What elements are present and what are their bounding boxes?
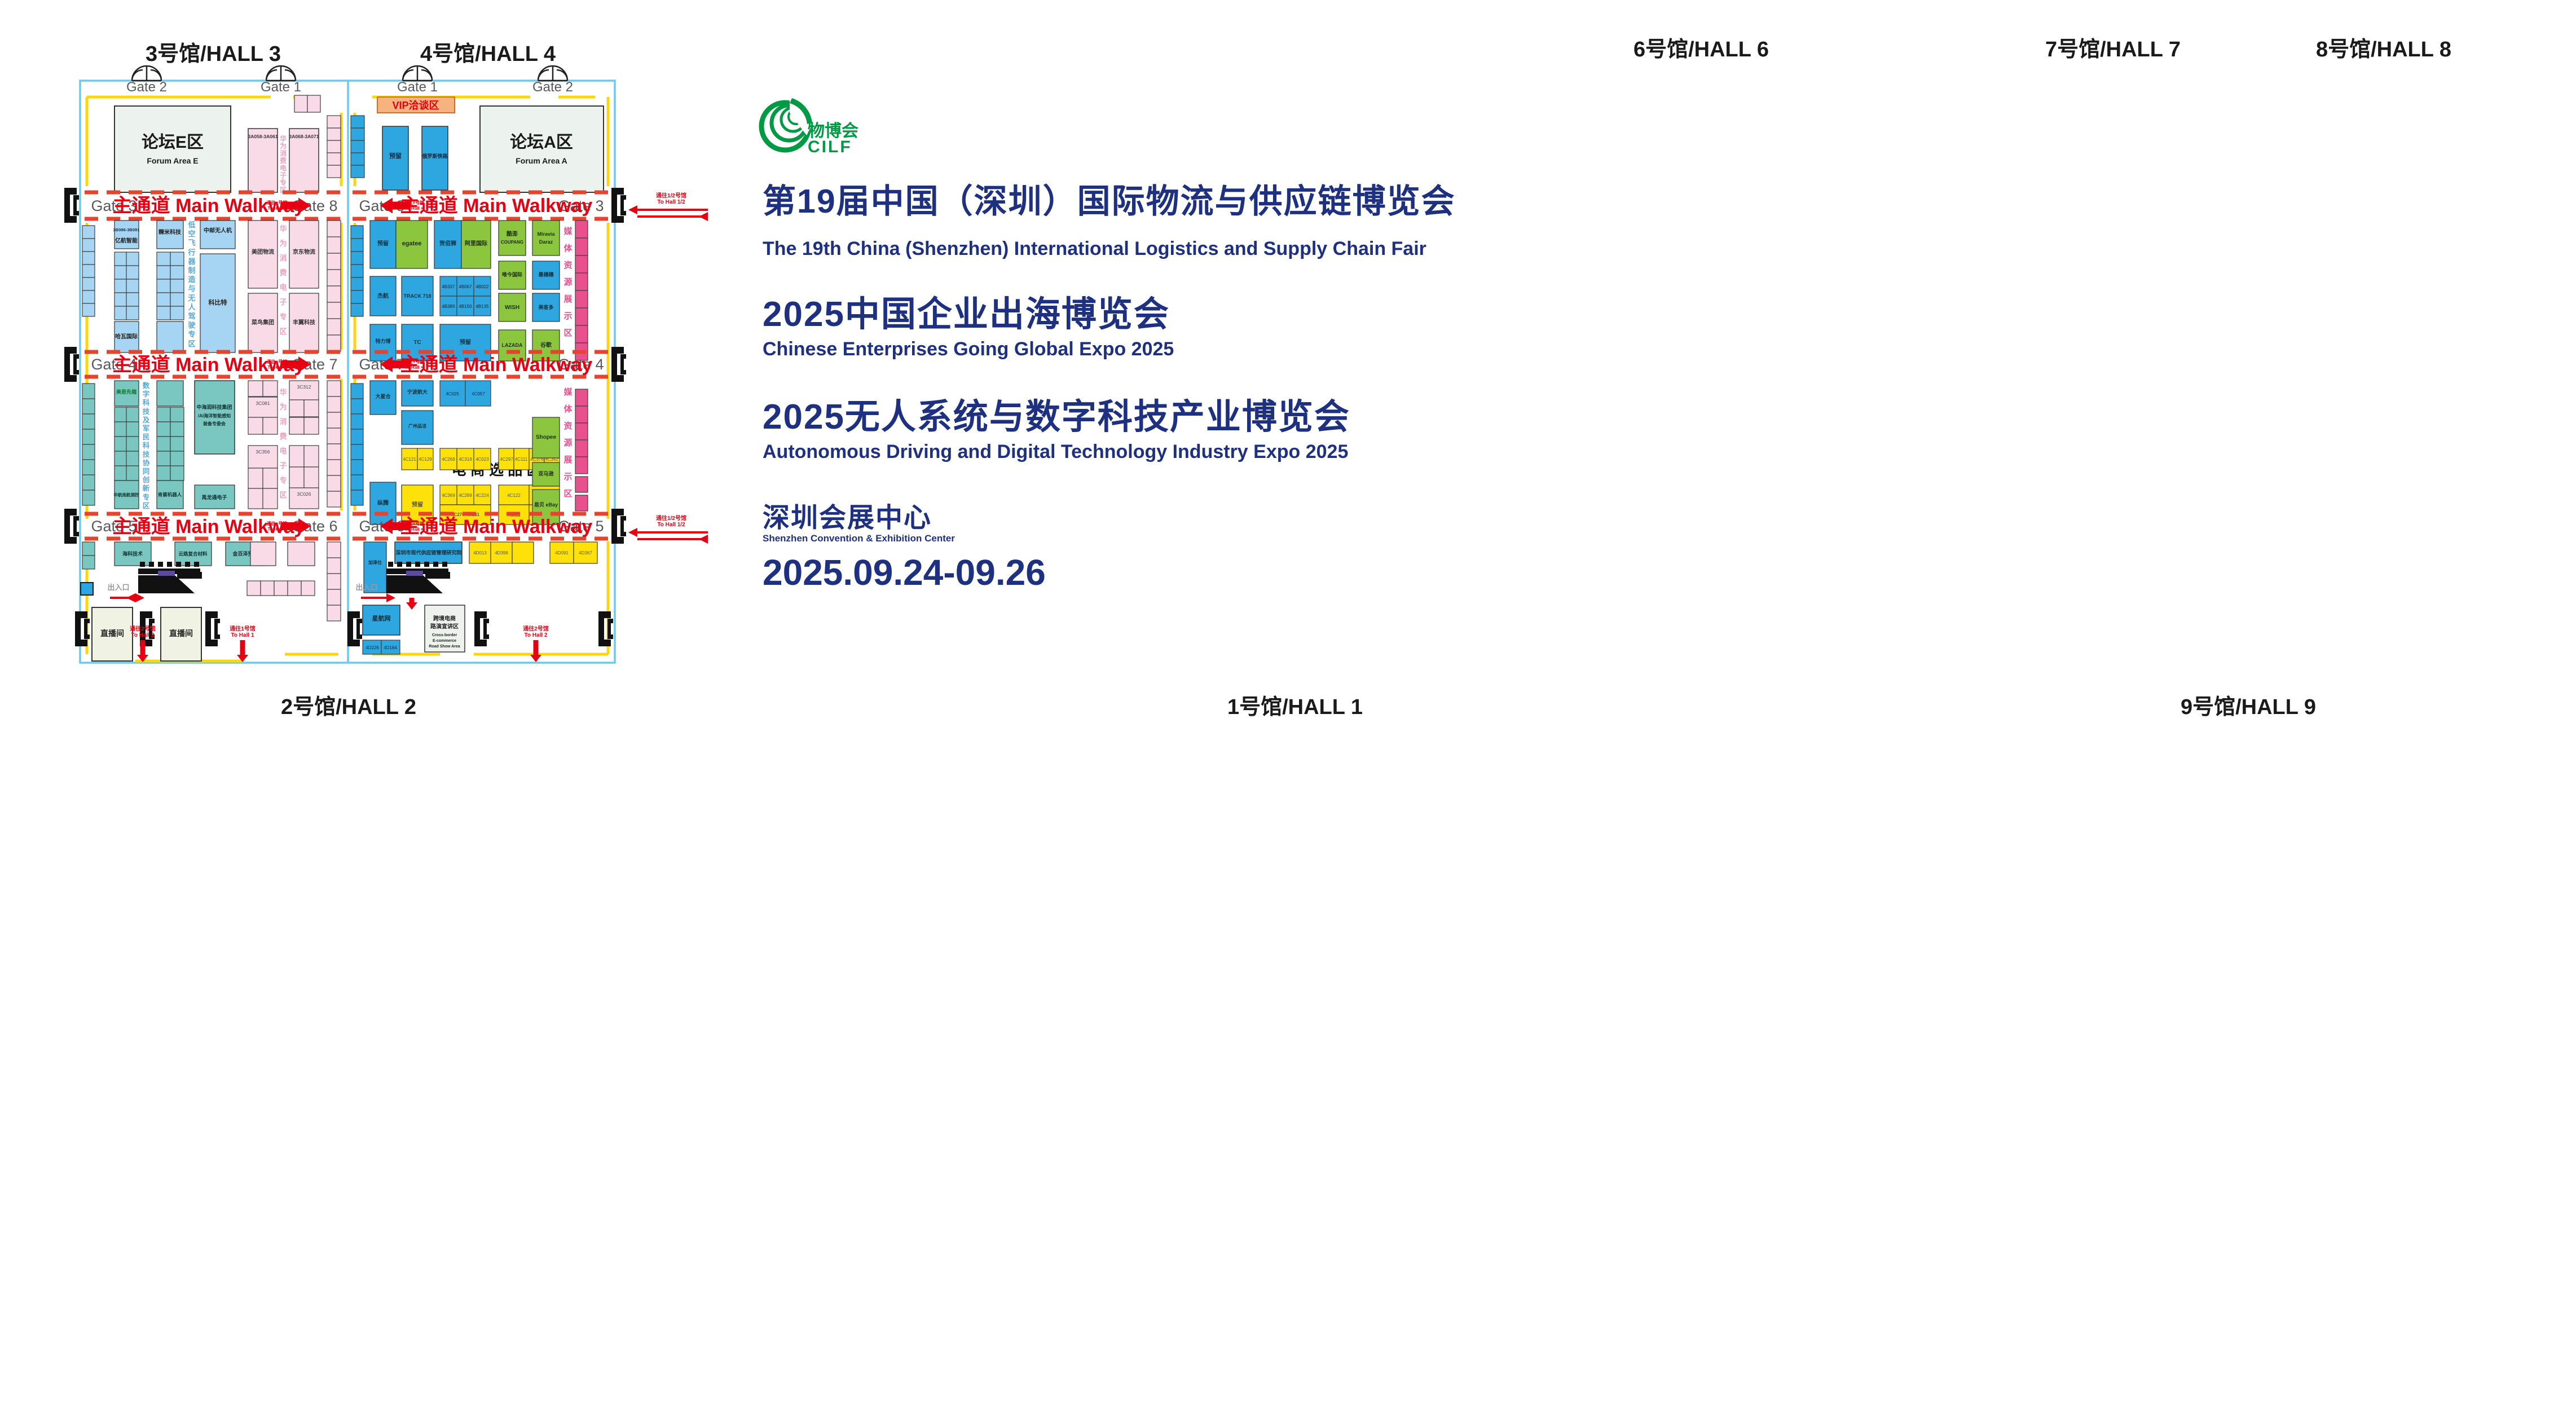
svg-text:费: 费 bbox=[279, 432, 287, 440]
svg-text:中海润科技集团: 中海润科技集团 bbox=[196, 404, 232, 410]
svg-text:直播间: 直播间 bbox=[169, 629, 193, 638]
svg-text:3C081: 3C081 bbox=[256, 400, 270, 406]
svg-text:低: 低 bbox=[187, 221, 195, 229]
svg-text:及: 及 bbox=[143, 416, 150, 424]
svg-text:4C289: 4C289 bbox=[459, 493, 472, 498]
svg-text:美客多: 美客多 bbox=[538, 304, 553, 310]
svg-text:4B150: 4B150 bbox=[459, 304, 472, 309]
svg-text:4C057: 4C057 bbox=[472, 391, 485, 396]
svg-text:区: 区 bbox=[563, 489, 572, 499]
svg-text:4C129: 4C129 bbox=[419, 457, 432, 462]
svg-text:4C025: 4C025 bbox=[446, 391, 459, 396]
svg-text:专: 专 bbox=[188, 330, 195, 338]
svg-text:To Hall 2: To Hall 2 bbox=[131, 632, 155, 638]
svg-text:丰翼科技: 丰翼科技 bbox=[293, 319, 316, 326]
svg-text:子: 子 bbox=[279, 461, 287, 470]
svg-text:区: 区 bbox=[279, 491, 287, 499]
svg-text:大星仓: 大星仓 bbox=[375, 393, 391, 399]
svg-text:COUPANG: COUPANG bbox=[501, 240, 523, 245]
svg-text:4D226: 4D226 bbox=[366, 645, 379, 650]
svg-text:TC: TC bbox=[413, 340, 421, 346]
svg-text:区: 区 bbox=[143, 502, 150, 510]
svg-text:To Hall 1: To Hall 1 bbox=[231, 632, 254, 638]
svg-text:美团物流: 美团物流 bbox=[252, 248, 274, 255]
svg-text:子: 子 bbox=[279, 298, 287, 306]
svg-text:Gate 2: Gate 2 bbox=[126, 80, 167, 95]
svg-text:主通道 Main Walkway: 主通道 Main Walkway bbox=[400, 354, 593, 376]
svg-text:To Hall ×: To Hall × bbox=[268, 527, 287, 532]
svg-text:科比特: 科比特 bbox=[209, 298, 227, 306]
svg-text:E-commerce: E-commerce bbox=[433, 639, 456, 643]
svg-text:TRACK 718: TRACK 718 bbox=[403, 293, 431, 299]
svg-text:通往1/2号馆: 通往1/2号馆 bbox=[656, 514, 686, 522]
svg-text:体: 体 bbox=[563, 243, 573, 253]
svg-text:4B067: 4B067 bbox=[459, 284, 472, 289]
svg-text:通往×号馆: 通往×号馆 bbox=[267, 359, 288, 364]
svg-text:酷澎: 酷澎 bbox=[507, 230, 518, 237]
svg-text:2025中国企业出海博览会: 2025中国企业出海博览会 bbox=[763, 295, 1170, 334]
svg-text:宁波航大: 宁波航大 bbox=[407, 389, 428, 395]
svg-text:费: 费 bbox=[279, 268, 287, 277]
svg-text:专: 专 bbox=[280, 178, 287, 187]
svg-text:专: 专 bbox=[143, 493, 150, 501]
svg-text:7号馆/HALL 7: 7号馆/HALL 7 bbox=[2045, 38, 2181, 61]
svg-text:Miravia: Miravia bbox=[537, 231, 555, 237]
svg-text:论坛A区: 论坛A区 bbox=[510, 133, 573, 152]
svg-text:To Hall 2: To Hall 2 bbox=[525, 632, 548, 638]
svg-text:科: 科 bbox=[143, 441, 150, 450]
svg-text:Cross-border: Cross-border bbox=[432, 633, 457, 637]
svg-text:行: 行 bbox=[187, 248, 195, 257]
svg-text:数: 数 bbox=[142, 381, 150, 390]
svg-text:VIP洽谈区: VIP洽谈区 bbox=[392, 99, 439, 111]
svg-text:Gate 1: Gate 1 bbox=[261, 80, 301, 95]
svg-text:粿米科技: 粿米科技 bbox=[158, 228, 182, 236]
svg-text:3C312: 3C312 bbox=[297, 384, 311, 390]
svg-text:3C026: 3C026 bbox=[297, 491, 311, 497]
svg-text:To Hall 1/2: To Hall 1/2 bbox=[657, 199, 685, 205]
svg-text:同: 同 bbox=[143, 468, 150, 475]
svg-text:海科技术: 海科技术 bbox=[122, 550, 143, 557]
svg-text:主通道 Main Walkway: 主通道 Main Walkway bbox=[400, 516, 593, 537]
svg-text:出入口: 出入口 bbox=[355, 583, 377, 592]
svg-text:民: 民 bbox=[143, 433, 150, 441]
svg-text:4号馆/HALL 4: 4号馆/HALL 4 bbox=[420, 42, 556, 66]
svg-text:9号馆/HALL 9: 9号馆/HALL 9 bbox=[2181, 695, 2316, 719]
svg-text:/AI海洋智能感知: /AI海洋智能感知 bbox=[198, 413, 231, 418]
svg-text:4C122: 4C122 bbox=[507, 493, 521, 498]
svg-text:驾: 驾 bbox=[188, 312, 195, 320]
svg-text:加泽仕: 加泽仕 bbox=[368, 559, 382, 565]
svg-text:2号馆/HALL 2: 2号馆/HALL 2 bbox=[281, 695, 416, 719]
svg-text:预留: 预留 bbox=[377, 240, 389, 247]
svg-text:4C224: 4C224 bbox=[475, 493, 489, 498]
svg-text:4C111: 4C111 bbox=[515, 457, 528, 462]
svg-text:费: 费 bbox=[280, 156, 287, 165]
svg-text:军: 军 bbox=[143, 424, 150, 433]
svg-text:4D184: 4D184 bbox=[384, 645, 397, 650]
svg-text:4D367: 4D367 bbox=[579, 550, 592, 556]
svg-text:技: 技 bbox=[143, 407, 150, 416]
svg-text:肯綮机器人: 肯綮机器人 bbox=[158, 492, 182, 497]
svg-text:3A068-3A071: 3A068-3A071 bbox=[289, 134, 319, 139]
svg-text:纵腾: 纵腾 bbox=[377, 499, 389, 506]
svg-text:云路复合材料: 云路复合材料 bbox=[178, 551, 208, 557]
svg-text:特力博: 特力博 bbox=[375, 338, 390, 344]
svg-text:为: 为 bbox=[279, 239, 287, 248]
svg-text:通往×号馆: 通往×号馆 bbox=[404, 521, 425, 526]
svg-text:驶: 驶 bbox=[188, 321, 195, 329]
svg-text:资: 资 bbox=[563, 260, 572, 270]
svg-text:京东物流: 京东物流 bbox=[293, 248, 315, 255]
svg-text:To Hall ×: To Hall × bbox=[268, 365, 287, 370]
svg-text:Gate 1: Gate 1 bbox=[397, 80, 438, 95]
svg-text:资: 资 bbox=[563, 421, 572, 431]
svg-text:源: 源 bbox=[563, 277, 572, 287]
svg-text:通往2号馆: 通往2号馆 bbox=[523, 625, 549, 632]
svg-text:源: 源 bbox=[563, 438, 572, 448]
svg-text:2025无人系统与数字科技产业博览会: 2025无人系统与数字科技产业博览会 bbox=[763, 398, 1350, 437]
svg-text:预留: 预留 bbox=[460, 338, 471, 346]
svg-text:体: 体 bbox=[563, 404, 573, 414]
svg-text:禹龙通电子: 禹龙通电子 bbox=[201, 494, 227, 500]
svg-text:亚马逊: 亚马逊 bbox=[538, 470, 553, 477]
svg-text:创: 创 bbox=[142, 475, 150, 484]
svg-text:4D398: 4D398 bbox=[495, 550, 508, 556]
svg-text:Road Show Area: Road Show Area bbox=[429, 645, 460, 649]
svg-text:新: 新 bbox=[143, 484, 150, 492]
svg-text:示: 示 bbox=[563, 472, 572, 482]
svg-text:子: 子 bbox=[280, 171, 287, 179]
svg-text:菜鸟集团: 菜鸟集团 bbox=[251, 319, 274, 326]
svg-text:电: 电 bbox=[279, 447, 287, 455]
svg-text:美思先端: 美思先端 bbox=[116, 389, 136, 395]
svg-text:4B135: 4B135 bbox=[475, 304, 489, 309]
svg-text:CILF: CILF bbox=[808, 138, 852, 156]
svg-text:飞: 飞 bbox=[188, 239, 195, 247]
svg-text:协: 协 bbox=[143, 459, 150, 467]
svg-text:贺佰狮: 贺佰狮 bbox=[439, 240, 456, 247]
svg-text:Shopee: Shopee bbox=[536, 434, 557, 440]
svg-text:4D013: 4D013 bbox=[473, 550, 487, 556]
svg-text:通往×号馆: 通往×号馆 bbox=[404, 359, 425, 364]
svg-text:To Hall ×: To Hall × bbox=[268, 206, 287, 211]
svg-text:易贝 eBay: 易贝 eBay bbox=[534, 502, 558, 508]
svg-text:路演宣讲区: 路演宣讲区 bbox=[430, 623, 459, 630]
svg-text:电: 电 bbox=[279, 283, 287, 292]
svg-text:To Hall ×: To Hall × bbox=[405, 527, 424, 532]
svg-text:展: 展 bbox=[563, 294, 572, 304]
svg-text:4C369: 4C369 bbox=[442, 493, 455, 498]
svg-text:字: 字 bbox=[143, 390, 150, 398]
svg-text:To Hall 1/2: To Hall 1/2 bbox=[657, 522, 685, 528]
svg-text:Forum Area E: Forum Area E bbox=[147, 156, 198, 165]
svg-text:专: 专 bbox=[279, 476, 287, 484]
svg-text:无: 无 bbox=[187, 294, 195, 302]
svg-text:华: 华 bbox=[280, 134, 287, 143]
svg-text:谷歌: 谷歌 bbox=[540, 341, 552, 349]
svg-text:第19届中国（深圳）国际物流与供应链博览会: 第19届中国（深圳）国际物流与供应链博览会 bbox=[763, 183, 1456, 220]
svg-text:华: 华 bbox=[279, 224, 287, 233]
svg-text:示: 示 bbox=[563, 311, 572, 321]
svg-text:电: 电 bbox=[280, 164, 287, 172]
svg-text:广州品洁: 广州品洁 bbox=[408, 423, 426, 429]
svg-text:唯今国际: 唯今国际 bbox=[502, 271, 522, 277]
svg-text:To Hall ×: To Hall × bbox=[405, 206, 424, 211]
svg-text:3B086-3B091: 3B086-3B091 bbox=[113, 227, 140, 232]
svg-text:egatee: egatee bbox=[402, 240, 422, 247]
svg-text:出入口: 出入口 bbox=[107, 583, 129, 592]
svg-text:华: 华 bbox=[279, 388, 287, 396]
svg-text:论坛E区: 论坛E区 bbox=[142, 133, 204, 152]
svg-text:技: 技 bbox=[143, 450, 150, 459]
svg-text:区: 区 bbox=[279, 327, 287, 336]
svg-text:深圳会展中心: 深圳会展中心 bbox=[763, 503, 932, 533]
svg-text:WISH: WISH bbox=[505, 305, 519, 311]
svg-text:预留: 预留 bbox=[412, 501, 423, 508]
svg-text:跨境电商: 跨境电商 bbox=[433, 615, 456, 622]
svg-text:3C356: 3C356 bbox=[256, 449, 270, 455]
svg-text:墨穗穗: 墨穗穗 bbox=[538, 271, 553, 277]
svg-text:4B389: 4B389 bbox=[442, 304, 455, 309]
svg-text:Daraz: Daraz bbox=[539, 239, 553, 245]
svg-text:为: 为 bbox=[280, 142, 287, 150]
svg-text:消: 消 bbox=[280, 149, 287, 157]
svg-text:2025.09.24-09.26: 2025.09.24-09.26 bbox=[763, 552, 1046, 593]
svg-text:4C023: 4C023 bbox=[475, 457, 489, 462]
svg-text:4C297: 4C297 bbox=[500, 457, 513, 462]
svg-text:区: 区 bbox=[188, 340, 195, 348]
svg-text:媒: 媒 bbox=[563, 387, 573, 397]
svg-text:LAZADA: LAZADA bbox=[502, 342, 523, 348]
svg-text:星航网: 星航网 bbox=[372, 614, 391, 622]
svg-text:器: 器 bbox=[187, 257, 196, 266]
svg-text:通往×号馆: 通往×号馆 bbox=[404, 200, 425, 205]
svg-text:消: 消 bbox=[279, 417, 287, 426]
svg-text:8号馆/HALL 8: 8号馆/HALL 8 bbox=[2316, 38, 2451, 61]
svg-text:哈瓦国际: 哈瓦国际 bbox=[115, 333, 138, 340]
svg-text:杰航: 杰航 bbox=[377, 292, 389, 299]
svg-text:专: 专 bbox=[279, 312, 287, 321]
svg-text:6号馆/HALL 6: 6号馆/HALL 6 bbox=[1633, 38, 1769, 61]
svg-text:4C318: 4C318 bbox=[459, 457, 472, 462]
svg-text:俄罗斯铁路: 俄罗斯铁路 bbox=[421, 153, 448, 159]
svg-text:4B022: 4B022 bbox=[475, 284, 489, 289]
svg-text:4D091: 4D091 bbox=[555, 550, 569, 556]
svg-text:阿里国际: 阿里国际 bbox=[465, 240, 487, 247]
svg-text:通往×号馆: 通往×号馆 bbox=[267, 521, 288, 526]
svg-text:展: 展 bbox=[563, 455, 572, 465]
svg-text:预留: 预留 bbox=[389, 152, 402, 160]
svg-text:Forum Area A: Forum Area A bbox=[516, 156, 567, 165]
svg-text:通往2号馆: 通往2号馆 bbox=[130, 625, 156, 632]
svg-text:3A058-3A061: 3A058-3A061 bbox=[248, 134, 278, 139]
svg-text:深圳市现代供应链管理研究院: 深圳市现代供应链管理研究院 bbox=[395, 549, 461, 556]
svg-text:中航南航测控: 中航南航测控 bbox=[114, 492, 139, 497]
svg-text:Chinese Enterprises Going Glob: Chinese Enterprises Going Global Expo 20… bbox=[763, 338, 1174, 360]
svg-text:制: 制 bbox=[188, 266, 195, 275]
svg-text:通往×号馆: 通往×号馆 bbox=[267, 200, 288, 205]
svg-text:Autonomous Driving and Digital: Autonomous Driving and Digital Technolog… bbox=[763, 441, 1348, 462]
svg-text:消: 消 bbox=[279, 254, 287, 262]
svg-text:媒: 媒 bbox=[563, 227, 573, 236]
svg-text:1号馆/HALL 1: 1号馆/HALL 1 bbox=[1227, 695, 1363, 719]
svg-text:与: 与 bbox=[188, 284, 195, 293]
svg-text:To Hall ×: To Hall × bbox=[405, 365, 424, 370]
svg-text:主通道 Main Walkway: 主通道 Main Walkway bbox=[400, 195, 593, 217]
svg-text:通往1号馆: 通往1号馆 bbox=[230, 625, 256, 632]
svg-text:装备专委会: 装备专委会 bbox=[202, 421, 226, 426]
svg-text:Gate 2: Gate 2 bbox=[532, 80, 573, 95]
svg-text:为: 为 bbox=[279, 403, 287, 411]
svg-text:中邮无人机: 中邮无人机 bbox=[204, 227, 232, 234]
svg-text:4C268: 4C268 bbox=[442, 457, 455, 462]
svg-text:4C121: 4C121 bbox=[403, 457, 416, 462]
svg-text:造: 造 bbox=[188, 275, 196, 284]
svg-text:直播间: 直播间 bbox=[100, 629, 124, 638]
svg-text:通往1/2号馆: 通往1/2号馆 bbox=[656, 192, 686, 199]
svg-text:Shenzhen Convention & Exhibiti: Shenzhen Convention & Exhibition Center bbox=[763, 533, 955, 544]
svg-text:4B337: 4B337 bbox=[442, 284, 455, 289]
svg-text:3号馆/HALL 3: 3号馆/HALL 3 bbox=[146, 42, 281, 66]
svg-text:人: 人 bbox=[188, 303, 196, 311]
svg-text:科: 科 bbox=[143, 398, 150, 407]
svg-text:亿航智能: 亿航智能 bbox=[115, 237, 138, 244]
svg-text:区: 区 bbox=[563, 328, 572, 338]
svg-text:The 19th China (Shenzhen) Inte: The 19th China (Shenzhen) International … bbox=[763, 238, 1426, 259]
svg-text:空: 空 bbox=[188, 230, 195, 238]
